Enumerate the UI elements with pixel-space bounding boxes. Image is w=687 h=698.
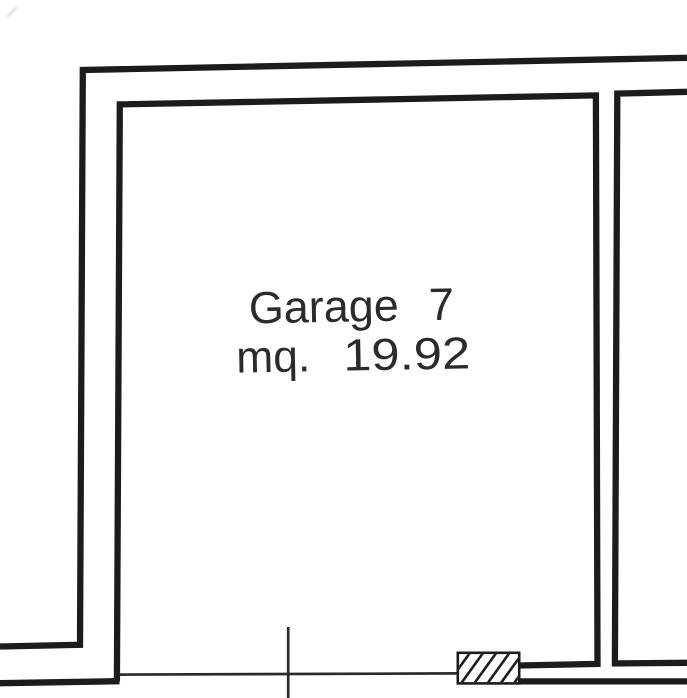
svg-text:19.92: 19.92: [343, 327, 471, 380]
svg-text:7: 7: [428, 279, 454, 330]
svg-text:Garage: Garage: [248, 280, 399, 334]
svg-text:mq.: mq.: [236, 330, 311, 382]
